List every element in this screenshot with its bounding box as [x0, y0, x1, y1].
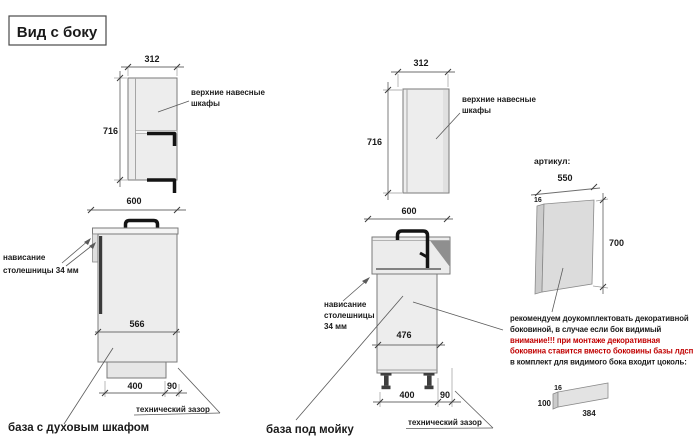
oven-handle-icon	[126, 221, 158, 229]
decor-panel: артикул: 550 16 700	[531, 156, 624, 312]
wall1-bracket-bottom-icon	[147, 180, 175, 193]
wall2-height-value: 716	[367, 137, 382, 147]
wall2-label-line2: шкафы	[462, 106, 491, 115]
plinth-thickness-value: 16	[554, 385, 562, 392]
base-sink-cabinet: 600 476 400 90 нависани	[266, 206, 503, 436]
wall2-front-shade	[443, 90, 449, 192]
title-box: Вид с боку	[9, 16, 106, 45]
wall1-width-dim: 312	[121, 54, 184, 76]
panel-height-value: 700	[609, 238, 624, 248]
drawing-canvas: Вид с боку 312 716 верхние навесные шкаф…	[0, 0, 700, 438]
sink-plinth-depth-value: 400	[399, 390, 414, 400]
sink-depth-value: 476	[396, 330, 411, 340]
panel-header: артикул:	[534, 156, 570, 166]
plinth-edge-face	[553, 392, 558, 409]
note-warning-line1: внимание!!! при монтаже декоративная	[510, 336, 660, 345]
sink-leg-right-icon	[424, 373, 435, 389]
note-block: рекомендуем доукомплектовать декоративно…	[510, 314, 694, 367]
panel-width-value: 550	[557, 173, 572, 183]
oven-body	[98, 234, 177, 362]
wall1-label-line1: верхние навесные	[191, 88, 265, 97]
wall2-width-dim: 312	[391, 58, 455, 87]
base-oven-cabinet: 600 566 400 90 нависание столешницы 34 м…	[3, 196, 220, 434]
oven-overhang-line1: нависание	[3, 253, 46, 262]
sink-overhang-callout: нависание столешницы 34 мм	[324, 277, 375, 331]
note-line1: рекомендуем доукомплектовать декоративно…	[510, 314, 689, 323]
plinth-height-value: 100	[538, 399, 552, 408]
wall1-label-line2: шкафы	[191, 99, 220, 108]
note-line2: боковиной, в случае если бок видимый	[510, 325, 662, 334]
wall1-height-value: 716	[103, 126, 118, 136]
note-line3: в комплект для видимого бока входит цоко…	[510, 358, 687, 367]
wall1-height-dim: 716	[103, 71, 127, 187]
oven-caption-leader	[64, 348, 113, 424]
wall2-width-value: 312	[413, 58, 428, 68]
panel-height-dim: 700	[593, 193, 624, 294]
oven-width-value: 600	[126, 196, 141, 206]
oven-bottom-dims: 400 90	[99, 381, 187, 397]
oven-gap-value: 90	[167, 381, 177, 391]
sink-overhang-line3: 34 мм	[324, 322, 347, 331]
page-title: Вид с боку	[17, 24, 98, 41]
oven-door-edge	[99, 236, 102, 314]
oven-countertop	[93, 228, 179, 234]
side-view-drawing: Вид с боку 312 716 верхние навесные шкаф…	[0, 0, 700, 438]
sink-caption: база под мойку	[266, 424, 354, 436]
wall2-label-line1: верхние навесные	[462, 95, 536, 104]
oven-techgap-label: технический зазор	[136, 405, 210, 414]
sink-techgap-label: технический зазор	[408, 418, 482, 427]
wall1-width-value: 312	[144, 54, 159, 64]
sink-gap-value: 90	[440, 390, 450, 400]
note-warning-line2: боковина ставится вместо боковины базы л…	[510, 347, 694, 356]
oven-plinth	[107, 362, 166, 378]
sink-width-value: 600	[401, 206, 416, 216]
sink-width-dim: 600	[364, 206, 453, 222]
oven-depth-value: 566	[129, 319, 144, 329]
oven-plinth-depth-value: 400	[127, 381, 142, 391]
oven-overhang-line2: столешницы 34 мм	[3, 266, 79, 275]
oven-width-dim: 600	[87, 196, 186, 213]
panel-width-dim: 550	[531, 173, 600, 196]
plinth-drawing: 16 100 384	[538, 383, 608, 418]
plinth-length-value: 384	[582, 409, 596, 418]
oven-overhang-callout: нависание столешницы 34 мм	[3, 238, 96, 275]
panel-thickness-value: 16	[534, 197, 542, 204]
sink-leg-left-icon	[381, 373, 392, 389]
oven-caption: база с духовым шкафом	[8, 422, 149, 434]
wall2-body	[403, 89, 449, 193]
sink-body	[377, 274, 437, 373]
plinth-main-face	[558, 383, 608, 407]
wall2-height-dim: 716	[367, 82, 402, 200]
arrowhead-icon	[84, 238, 91, 245]
panel-main-face	[542, 200, 594, 292]
wall-cabinet-1: 312 716 верхние навесные шкафы	[103, 54, 265, 193]
wall-cabinet-2: 312 716 верхние навесные шкафы	[367, 58, 536, 200]
sink-overhang-line2: столешницы	[324, 311, 375, 320]
sink-overhang-line1: нависание	[324, 300, 367, 309]
